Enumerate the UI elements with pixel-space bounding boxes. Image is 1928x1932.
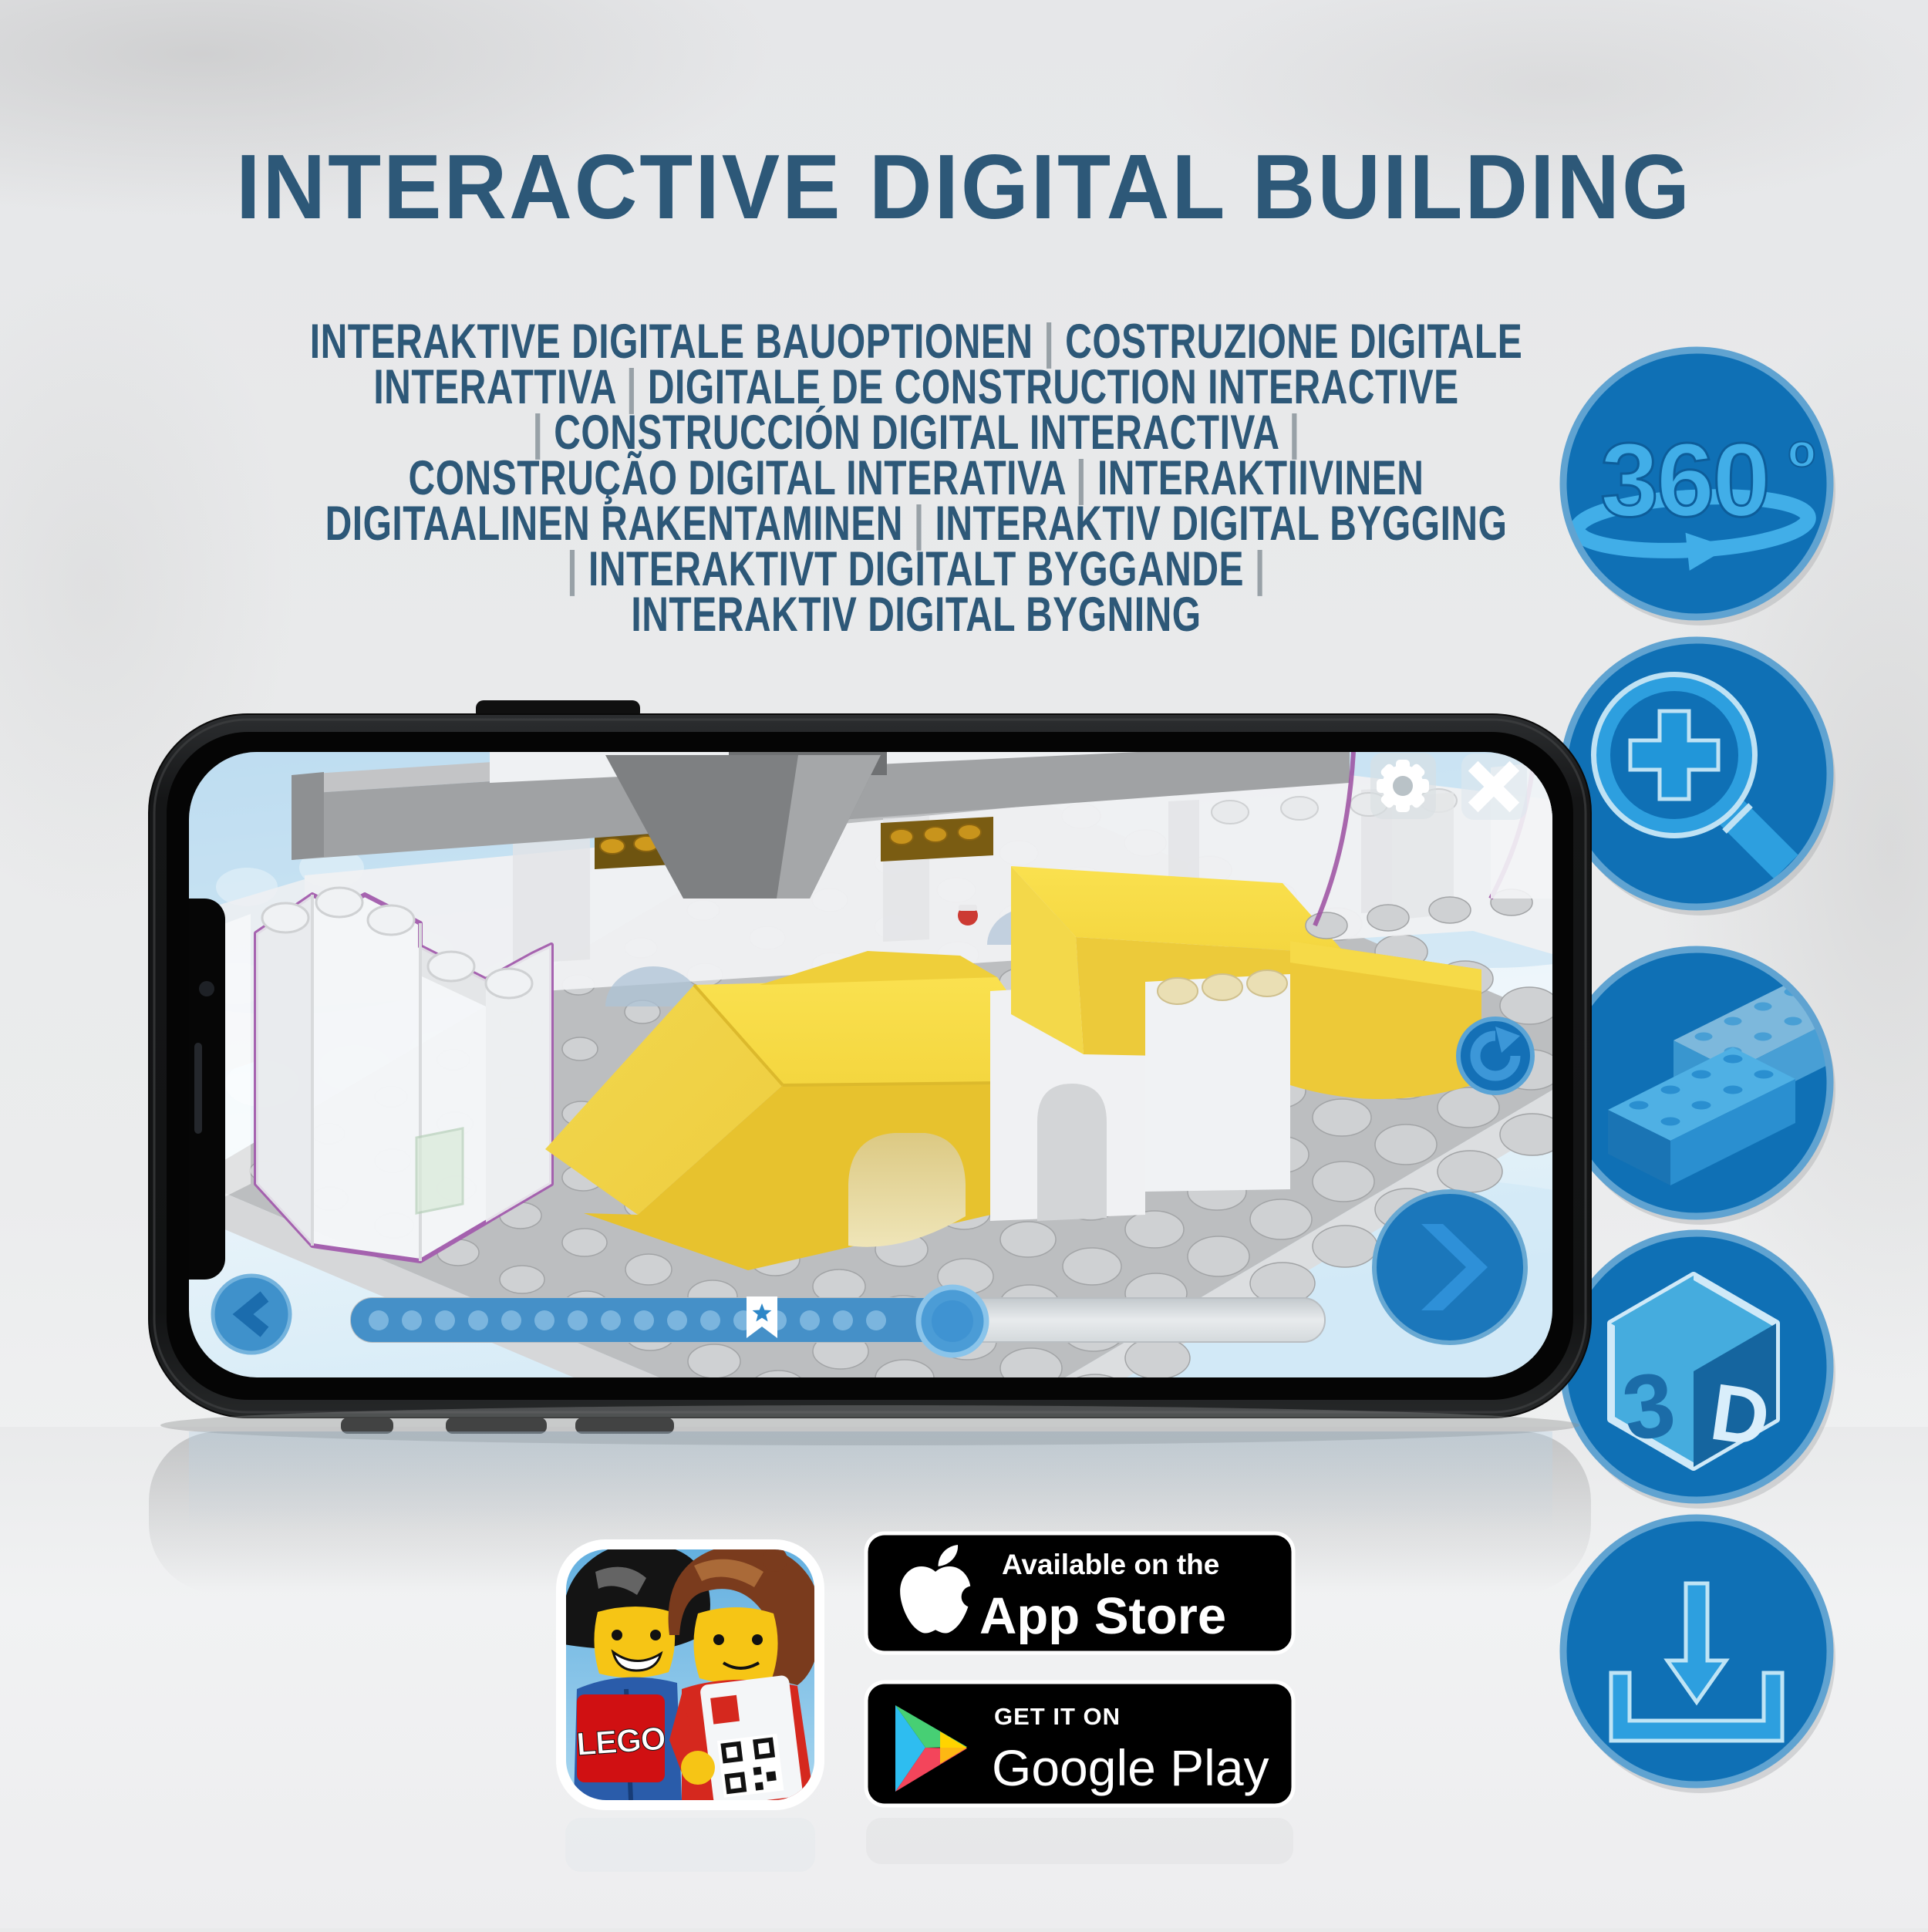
- svg-text:Google Play: Google Play: [992, 1739, 1269, 1796]
- svg-text:App Store: App Store: [979, 1587, 1226, 1645]
- svg-text:Available on the: Available on the: [1002, 1549, 1219, 1580]
- svg-text:D: D: [1705, 1367, 1775, 1464]
- svg-text:GET IT ON: GET IT ON: [994, 1703, 1121, 1730]
- svg-text:LEGO: LEGO: [575, 1720, 666, 1762]
